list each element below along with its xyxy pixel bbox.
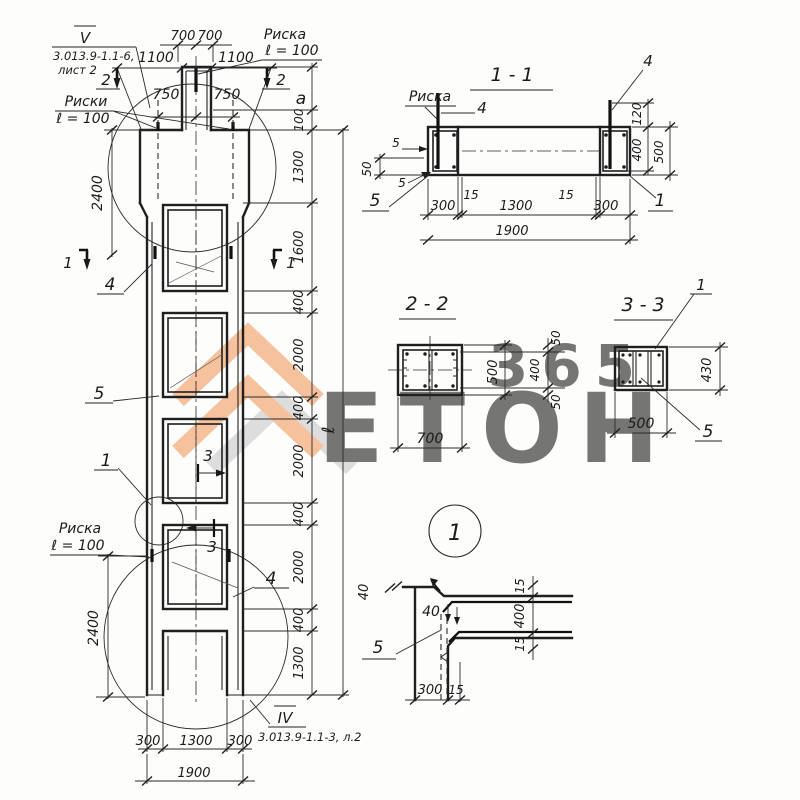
part-label-5: 5: [94, 384, 105, 404]
det1-dim-15-top: 15: [513, 578, 527, 593]
marker-3-lower-label: 3: [207, 538, 217, 556]
dim-chain-2000a: 2000: [292, 338, 307, 371]
watermark: ЕТОН 365: [178, 332, 675, 485]
s33-label-5: 5: [703, 422, 714, 442]
section-marker-1: 1 1: [63, 250, 296, 272]
dim-chain-400b: 400: [292, 396, 307, 421]
s11-dim-50: 50: [360, 161, 374, 177]
s11-dim-1900: 1900: [495, 224, 528, 239]
risk-label-topright-1: Риска: [264, 27, 306, 43]
dim-1100-right: 1100: [218, 50, 254, 66]
s33-label-1: 1: [696, 276, 706, 294]
risk-label-mid-1: Риска: [59, 521, 101, 537]
marker-1-left-label: 1: [63, 254, 73, 272]
det1-dim-40b: 40: [422, 604, 440, 620]
dim-1100-left: 1100: [138, 50, 174, 66]
s11-dim-300-left: 300: [431, 199, 456, 214]
s11-label-4-right: 4: [643, 52, 653, 70]
dim-700-left: 700: [171, 29, 196, 44]
reference-bottom: IV 3.013.9-1.1-3, л.2: [250, 700, 361, 744]
det1-dim-40a: 40: [357, 584, 372, 601]
ref-bottom-code: 3.013.9-1.1-3, л.2: [258, 730, 361, 744]
dim-1900-bottom: 1900: [177, 766, 210, 781]
risk-label-mid-2: ℓ = 100: [50, 538, 104, 554]
s22-dim-50-bottom: 50: [549, 394, 563, 410]
det1-dim-400: 400: [513, 604, 528, 629]
dim-750-right: 750: [214, 87, 241, 103]
s11-label-4-left: 4: [477, 99, 487, 117]
dim-total-l: ℓ: [319, 426, 339, 434]
detail-circle-riska: [135, 497, 183, 545]
s11-label-5: 5: [370, 191, 381, 211]
s11-dim-120: 120: [630, 102, 644, 125]
marker-3-upper-label: 3: [203, 447, 213, 465]
det1-dim-15c: 15: [448, 683, 463, 697]
dim-chain-1300b: 1300: [292, 646, 307, 679]
marker-1-right-label: 1: [286, 254, 296, 272]
dim-100: 100: [292, 108, 306, 131]
dim-chain-1300a: 1300: [292, 150, 307, 183]
dim-chain-400d: 400: [292, 608, 307, 633]
blueprint-page: ЕТОН 365: [0, 0, 800, 800]
s11-dim-400: 400: [630, 138, 644, 161]
risk-label-topleft-2: ℓ = 100: [55, 111, 109, 127]
dim-300-bottom-left: 300: [136, 734, 161, 749]
det1-label-5: 5: [373, 638, 384, 658]
bottom-dimensions: 300 1300 300 1900: [135, 698, 255, 786]
s22-dim-500: 500: [486, 360, 501, 385]
s22-dim-400: 400: [528, 358, 542, 381]
s11-dim-5a: 5: [392, 136, 400, 150]
ref-bottom-roman: IV: [278, 709, 294, 727]
section-3-3-title: 3 - 3: [621, 294, 664, 316]
drawing-canvas: ЕТОН 365: [0, 0, 800, 800]
dim-750-left: 750: [153, 87, 180, 103]
part-label-4-upper: 4: [105, 275, 116, 295]
part-label-4-lower: 4: [266, 569, 277, 589]
risk-label-topright-2: ℓ = 100: [264, 43, 318, 59]
s22-dim-700: 700: [417, 431, 444, 447]
dim-700-right: 700: [198, 29, 223, 44]
section-2-2-title: 2 - 2: [405, 293, 448, 315]
dim-2400-top: 2400: [90, 175, 106, 211]
detail-1: 1 40 40 15 400 15 300 15 5: [357, 505, 572, 705]
dim-300-bottom-right: 300: [228, 734, 253, 749]
part-label-1: 1: [101, 451, 112, 471]
detail-1-number: 1: [448, 521, 462, 546]
s22-dim-50-top: 50: [549, 330, 563, 346]
dim-chain-400a: 400: [292, 290, 307, 315]
marker-2-left-label: 2: [101, 71, 111, 89]
marker-2-right-label: 2: [276, 71, 286, 89]
s11-label-1: 1: [655, 191, 666, 211]
dim-a: a: [296, 89, 306, 109]
s11-dim-5b: 5: [398, 176, 406, 190]
s11-dim-15-left: 15: [463, 188, 478, 202]
section-1-1: 1 - 1 Риска 4 4 5 5 50 120 400 500: [360, 52, 678, 245]
ref-top-code: 3.013.9-1.1-6,: [53, 49, 134, 63]
s11-dim-500: 500: [652, 140, 666, 163]
dim-1300-bottom: 1300: [179, 734, 212, 749]
section-1-1-title: 1 - 1: [490, 64, 533, 86]
s11-dim-1300: 1300: [499, 199, 532, 214]
ref-top-sheet: лист 2: [57, 63, 97, 77]
s11-dim-15-right: 15: [558, 188, 573, 202]
s11-riska-label: Риска: [409, 89, 451, 105]
risk-label-topleft-1: Риски: [65, 94, 108, 110]
s33-dim-500: 500: [628, 416, 655, 432]
dim-chain-2000b: 2000: [292, 444, 307, 477]
dim-chain-400c: 400: [292, 502, 307, 527]
s11-dim-300-right: 300: [594, 199, 619, 214]
elevation-view: 700 700 1100 1100 750 750 a 100 1300 160…: [50, 26, 361, 786]
s33-dim-430: 430: [700, 358, 715, 383]
det1-dim-300: 300: [418, 683, 443, 698]
dim-2400-bottom: 2400: [86, 610, 102, 646]
dim-chain-2000c: 2000: [292, 550, 307, 583]
ref-top-roman: V: [80, 29, 92, 47]
left-dimensions: 2400 2400: [86, 126, 150, 702]
det1-dim-15-bottom: 15: [513, 636, 527, 651]
